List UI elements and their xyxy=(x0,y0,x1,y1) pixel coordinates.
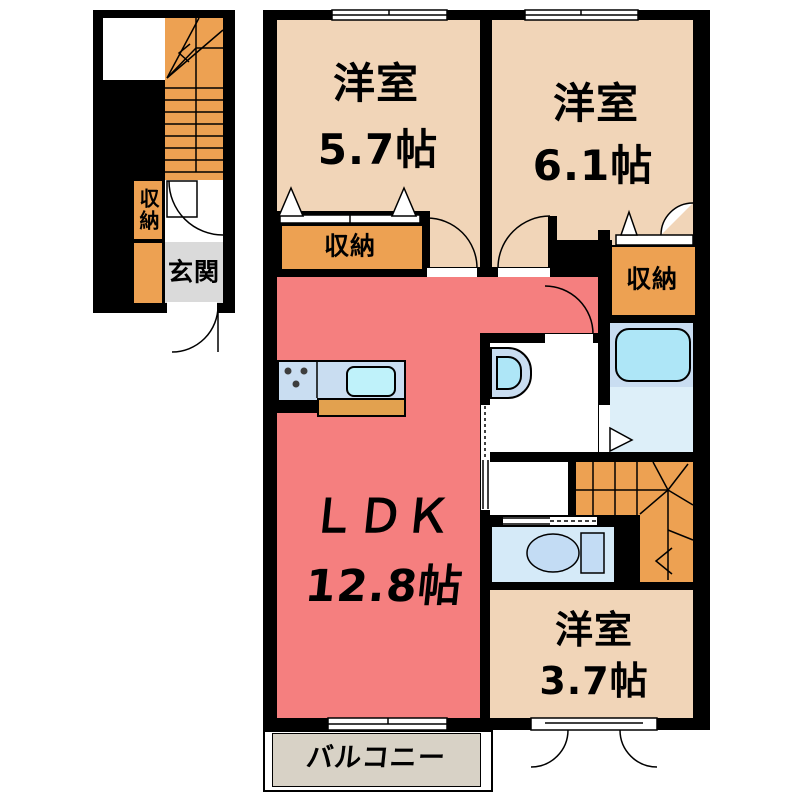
closet-61-label: 収納 xyxy=(626,267,678,292)
room-61-name: 洋室 xyxy=(553,83,639,125)
stairs-2f-arrow xyxy=(656,548,672,574)
closet-57-label: 収納 xyxy=(324,234,376,259)
closet-61-doors xyxy=(616,203,693,245)
ldk-size: 12.8帖 xyxy=(303,565,465,609)
toilet xyxy=(527,533,604,573)
window-room57 xyxy=(332,10,447,20)
ldk-name: ＬＤＫ xyxy=(308,493,454,539)
closet-1f-label: 収納 xyxy=(138,188,158,232)
room-61-size: 6.1帖 xyxy=(533,145,653,187)
closet-57-doors xyxy=(279,188,420,223)
stove-burners xyxy=(285,368,308,388)
stairs-1f-treads xyxy=(165,18,223,172)
room-37-name: 洋室 xyxy=(555,611,633,649)
room-57-name: 洋室 xyxy=(333,63,419,105)
window-ldk-balcony xyxy=(328,718,447,730)
genkan-label: 玄関 xyxy=(168,260,220,285)
floor-plan: 洋室 5.7帖 洋室 6.1帖 ＬＤＫ 12.8帖 洋室 3.7帖 収納 収納 … xyxy=(0,0,800,800)
room-37-size: 3.7帖 xyxy=(539,662,648,700)
entrance-door-swing xyxy=(172,306,218,352)
linework-layer xyxy=(0,0,800,800)
door-swing-room57 xyxy=(427,218,477,268)
door-swing-washroom xyxy=(545,286,593,334)
genkan-inner-door xyxy=(167,181,223,235)
window-room61 xyxy=(525,10,638,20)
door-swing-room61 xyxy=(498,216,550,268)
room-57-size: 5.7帖 xyxy=(318,129,438,171)
toilet-sliding-door xyxy=(503,517,597,525)
bathroom-door-arrow xyxy=(610,428,632,451)
room37-double-doors xyxy=(531,718,657,767)
balcony-label: バルコニー xyxy=(305,745,447,772)
sliding-door-ldk-lines xyxy=(483,406,488,509)
